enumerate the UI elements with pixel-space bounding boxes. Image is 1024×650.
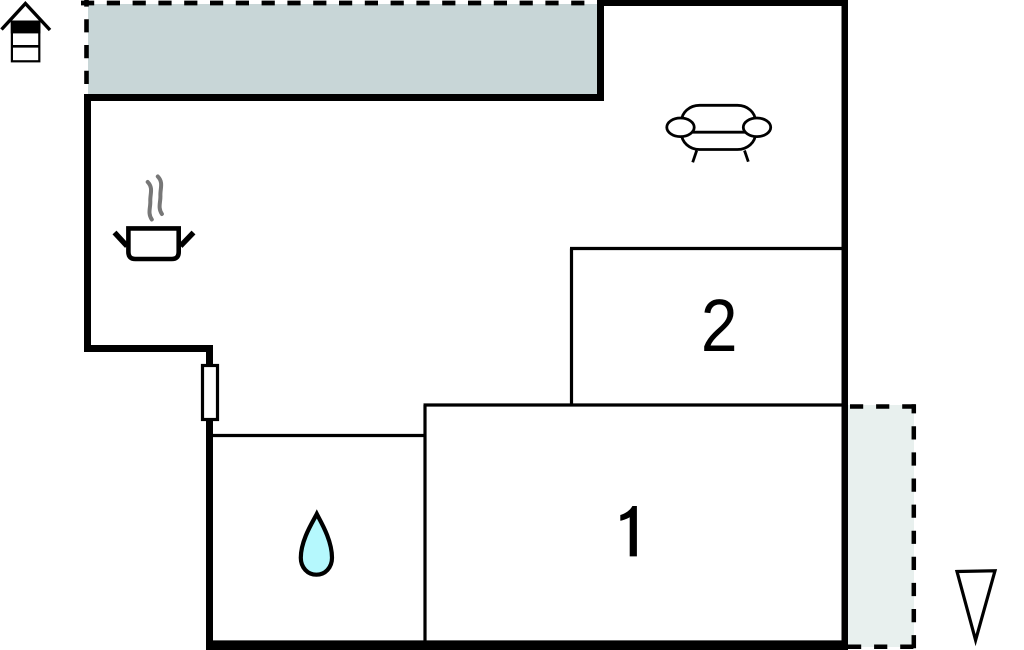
svg-text:2: 2 — [701, 284, 738, 366]
